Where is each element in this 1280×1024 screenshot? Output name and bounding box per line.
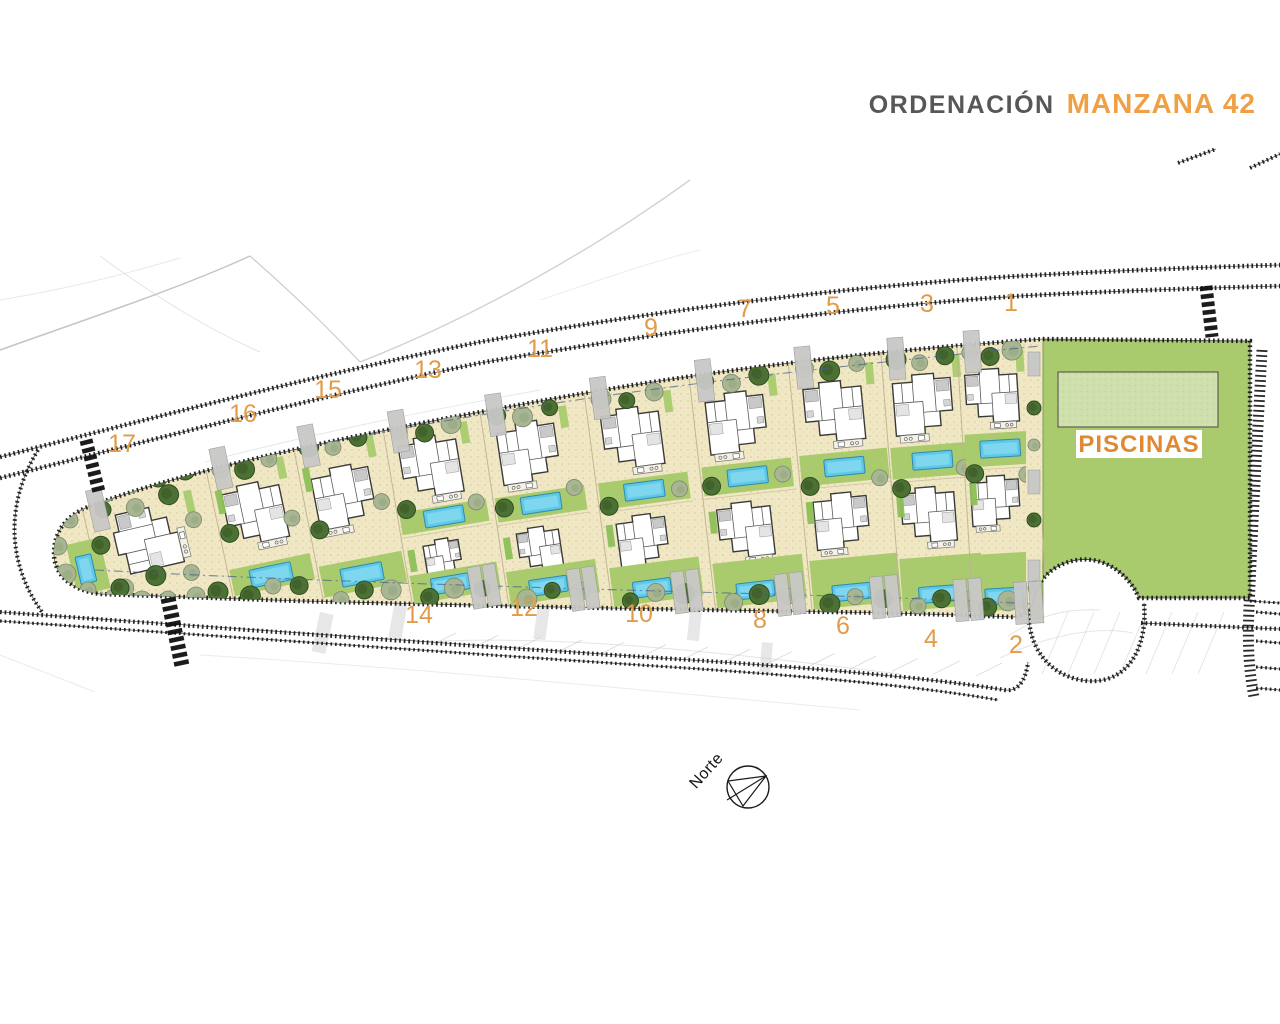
road-hatch-mark <box>1094 612 1120 674</box>
terrace-table <box>991 526 996 530</box>
tree-canopy <box>132 591 152 611</box>
house-roof-patch <box>853 497 866 508</box>
tree-canopy-shade <box>113 582 123 592</box>
road-hatch-mark <box>682 647 708 660</box>
tree-canopy <box>123 477 139 493</box>
pools-area-group: PISCINAS <box>1058 372 1218 458</box>
tree-canopy-shade <box>211 585 222 596</box>
house-store <box>807 411 814 418</box>
crossing-band <box>86 440 99 492</box>
house-store <box>520 549 525 554</box>
driveway <box>1028 581 1044 624</box>
house-store <box>228 515 236 523</box>
road-hatch-mark <box>430 633 456 646</box>
sketch-line <box>100 256 260 352</box>
house-room-shade <box>942 512 954 523</box>
house-room-shade <box>647 433 661 445</box>
pools-area-label: PISCINAS <box>1078 431 1199 458</box>
faded-path-mark <box>312 612 334 654</box>
site-plan-page: ORDENACIÓNMANZANA 42 PISCINAS 1234 <box>0 0 1280 1024</box>
road-hatch-mark <box>1146 612 1172 674</box>
tree-sage-icon <box>123 477 139 493</box>
terrace-table <box>262 542 269 548</box>
plot-number-label: 10 <box>625 600 653 628</box>
lane-parking <box>1028 352 1040 376</box>
sketch-line <box>0 256 250 350</box>
house-store <box>944 399 951 406</box>
hedge <box>969 483 977 505</box>
house-roof-patch <box>805 390 819 402</box>
terrace-table <box>637 467 644 472</box>
house-room-shade <box>620 541 632 551</box>
terrace-table <box>733 453 740 458</box>
driveway <box>963 330 982 373</box>
crossing-band <box>168 598 182 666</box>
house-roof-patch <box>966 376 978 386</box>
plot-number-label: 17 <box>108 430 136 458</box>
terrace-table <box>932 543 938 548</box>
pool <box>912 450 953 470</box>
terrace-table <box>918 435 925 440</box>
tree-dark-icon <box>175 460 195 480</box>
plot-number-label: 13 <box>414 356 442 384</box>
plot-number-label: 9 <box>644 314 658 342</box>
east-kerb-stub <box>1256 667 1280 669</box>
site-plan-drawing: PISCINAS 1234567891011121314151617 Norte <box>0 0 1280 1024</box>
plot-number-label: 1 <box>1004 289 1018 317</box>
road-hatch-mark <box>1042 612 1068 674</box>
plot-number-label: 2 <box>1009 631 1023 659</box>
road-hatch-mark <box>1172 612 1198 674</box>
sketch-line <box>0 258 180 300</box>
plot-number-label: 6 <box>836 612 850 640</box>
east-kerb-stub <box>1256 641 1280 643</box>
house-room-shade <box>550 545 560 554</box>
tree-dark-icon <box>1027 401 1041 415</box>
house-store <box>455 553 459 557</box>
road-hatch-mark <box>724 649 750 662</box>
pool-highlight <box>983 442 1018 455</box>
communal-pool-zone <box>1058 372 1218 427</box>
road-hatch-mark <box>976 663 1002 676</box>
terrace-table <box>994 423 1000 427</box>
road-hatch-mark <box>1068 612 1094 674</box>
tree-dark-icon <box>111 579 129 597</box>
house-roof-patch <box>1006 480 1017 490</box>
lane-parking <box>1028 470 1040 494</box>
sketch-line <box>0 655 95 692</box>
house-room-shade <box>1005 393 1017 403</box>
house-store <box>860 516 866 522</box>
pool <box>980 439 1021 458</box>
terrace-table <box>838 549 844 554</box>
north-compass: Norte <box>686 750 769 808</box>
tree-canopy-shade <box>193 592 202 601</box>
faded-path-mark <box>759 642 773 673</box>
plot-number-label: 4 <box>924 625 938 653</box>
tree-dark-icon <box>1027 513 1041 527</box>
driveway <box>887 337 906 380</box>
tree-canopy-shade <box>128 482 136 490</box>
plot-number-label: 12 <box>510 594 538 622</box>
plot-number-label: 7 <box>738 295 752 323</box>
house-roof-patch <box>652 518 664 528</box>
tree-canopy-shade <box>1029 403 1037 411</box>
plot-number-label: 16 <box>229 400 257 428</box>
driveway <box>1013 582 1029 625</box>
tree-sage-icon <box>187 587 205 605</box>
house-room-shade <box>848 408 862 420</box>
house-roof-patch <box>539 425 553 438</box>
road-hatch-mark <box>850 656 876 669</box>
tree-sage-icon <box>132 591 152 611</box>
lane-parking <box>1028 560 1040 584</box>
plot-number-label: 11 <box>527 335 553 363</box>
house-room-shade <box>317 498 332 511</box>
tree-sage-icon <box>56 564 76 584</box>
house-room-shade <box>426 558 435 566</box>
tree-canopy-shade <box>1032 443 1038 449</box>
terrace-table <box>526 483 533 488</box>
plot-number-label: 3 <box>920 290 934 318</box>
terrace-table <box>437 496 444 502</box>
house-roof-patch <box>354 469 369 482</box>
house-store <box>364 488 371 495</box>
tree-canopy <box>175 460 195 480</box>
house-room-shade <box>817 521 830 532</box>
tree-canopy-shade <box>55 542 64 551</box>
house-store <box>967 394 973 400</box>
tree-sage-icon <box>1028 439 1040 451</box>
road-hatch-mark <box>934 661 960 674</box>
plot-number-label: 14 <box>405 601 433 629</box>
plot-number-label: 5 <box>826 292 840 320</box>
house-room-shade <box>759 526 772 537</box>
tree-dark-icon <box>149 469 167 487</box>
house-store <box>1012 497 1018 503</box>
terrace-table <box>343 527 350 533</box>
house-store <box>403 467 410 474</box>
house-roof-patch <box>449 541 458 549</box>
house-roof-patch <box>224 494 239 507</box>
house-room-shade <box>501 453 515 466</box>
sketch-line <box>540 250 700 300</box>
terrace-table <box>838 442 845 447</box>
road-hatch-mark <box>892 658 918 671</box>
crossing-band <box>1206 286 1212 337</box>
east-kerb-stub <box>1256 688 1280 690</box>
house-roof-patch <box>936 379 950 391</box>
pool <box>824 456 865 477</box>
house-store <box>549 445 556 452</box>
house-room-shade <box>269 506 284 519</box>
north-label: Norte <box>686 750 726 792</box>
tree-canopy-shade <box>151 472 161 482</box>
road-hatch-mark <box>1198 612 1224 674</box>
tree-canopy <box>149 469 167 487</box>
tree-canopy-shade <box>67 517 75 525</box>
house-store <box>660 535 666 541</box>
sketch-line <box>250 256 360 362</box>
house-store <box>757 416 764 423</box>
east-kerb-stub <box>1256 612 1280 614</box>
house-room-shade <box>445 461 459 474</box>
house-store <box>605 437 612 444</box>
house-store <box>721 529 727 535</box>
faded-path-mark <box>687 610 702 641</box>
tree-canopy-shade <box>139 597 149 607</box>
house-room-shade <box>896 404 910 416</box>
tree-canopy-shade <box>1029 515 1037 523</box>
house-room-shade <box>709 423 723 435</box>
house-roof-patch <box>718 510 731 521</box>
plot-number-label: 8 <box>753 606 767 634</box>
tree-canopy-shade <box>178 463 189 474</box>
house-roof-patch <box>518 534 528 543</box>
tree-dark-icon <box>965 464 984 483</box>
tree-sage-icon <box>62 512 78 528</box>
plot-number-label: 15 <box>314 376 342 404</box>
tree-sage-icon <box>49 537 67 555</box>
house-roof-patch <box>748 397 762 409</box>
